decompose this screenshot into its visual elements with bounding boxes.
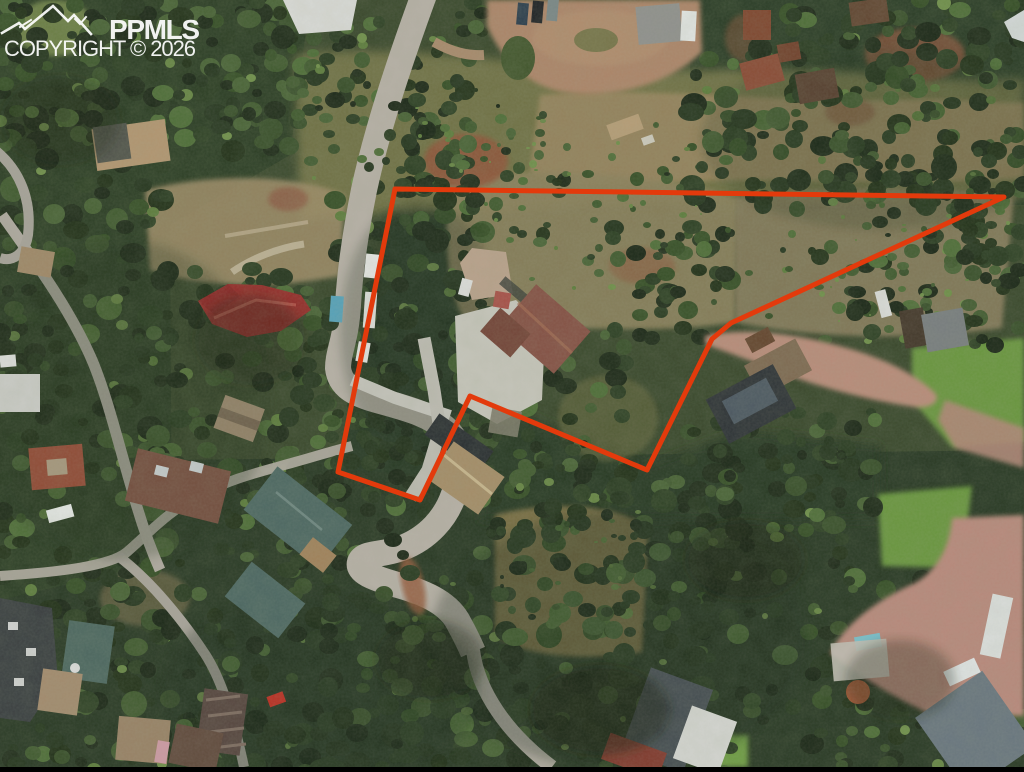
- svg-text:COPYRIGHT © 2026: COPYRIGHT © 2026: [4, 36, 196, 61]
